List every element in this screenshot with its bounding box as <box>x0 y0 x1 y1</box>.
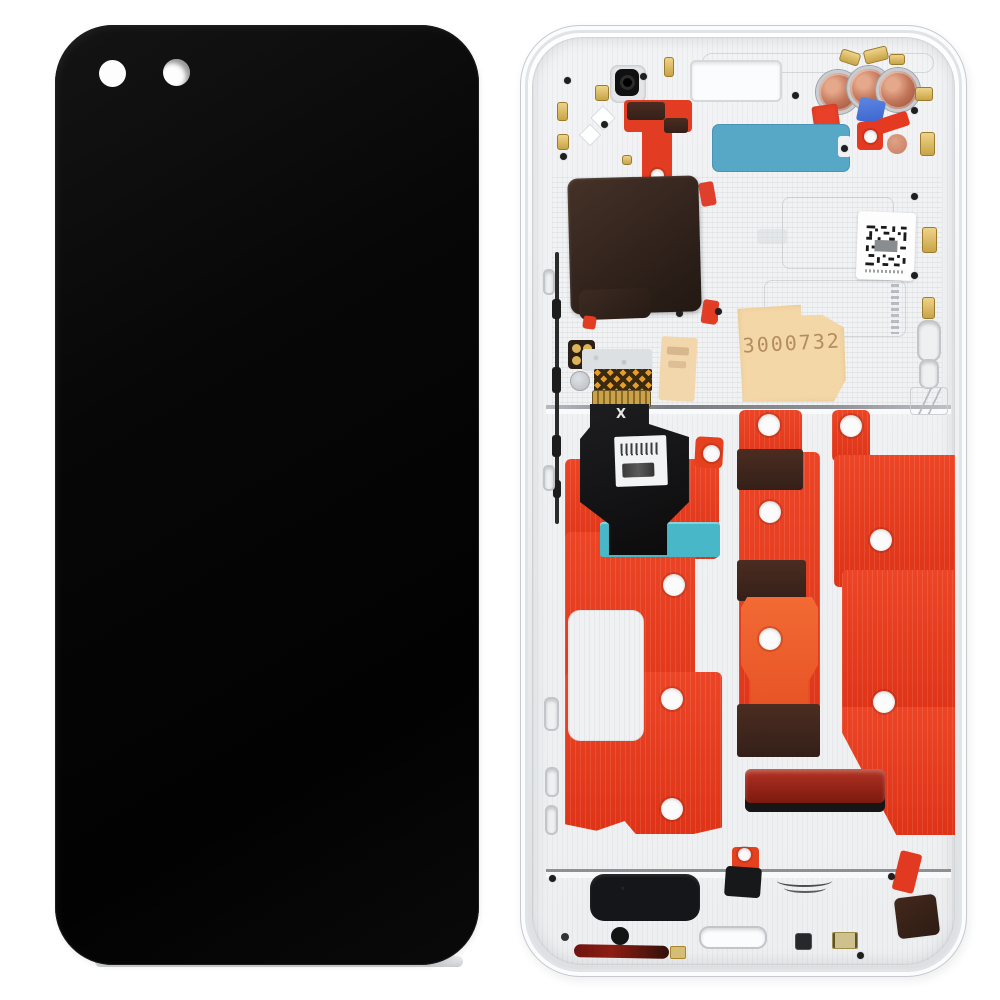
screw-dot <box>561 933 569 941</box>
antenna-blob <box>552 435 561 457</box>
screw-dot <box>560 153 567 160</box>
screw-dot <box>715 308 722 315</box>
flex-label-barcode <box>620 442 658 455</box>
qr-code-icon <box>864 225 907 266</box>
qr-caption-marks <box>865 269 905 273</box>
gold-contact <box>920 132 935 156</box>
salmon-aperture <box>887 134 907 154</box>
gold-chip <box>832 932 858 949</box>
gold-contact <box>595 85 609 101</box>
side-slot <box>544 697 559 731</box>
frame-inner-plate: 3000732 <box>532 37 955 965</box>
adhesive-hole <box>661 688 683 710</box>
adhesive-hole <box>840 415 862 437</box>
diamond-tile <box>579 124 602 147</box>
gold-trace <box>889 54 905 65</box>
antenna-blob <box>552 367 561 393</box>
speaker-pad-right <box>894 894 941 940</box>
adhesive-hole <box>873 691 895 713</box>
serial-text: 3000732 <box>742 328 841 357</box>
speaker-mesh-pad <box>590 874 700 921</box>
black-bracket <box>724 866 762 898</box>
silver-grommet <box>570 371 590 391</box>
red-mini-tab <box>582 315 597 330</box>
screw-dot <box>888 873 895 880</box>
side-slot <box>545 767 559 797</box>
gold-contact <box>557 134 569 150</box>
side-bracket <box>910 387 948 415</box>
flex-x-mark: X <box>616 407 626 422</box>
gold-contact <box>664 57 674 77</box>
adhesive-hole <box>759 628 781 650</box>
maroon-gloss-pad <box>745 769 885 812</box>
gold-contact <box>922 227 937 253</box>
flex-shield-band <box>582 349 652 371</box>
screw-dot <box>640 73 647 80</box>
screw-dot <box>911 272 918 279</box>
red-tab-hole <box>703 445 720 462</box>
gold-contact-dot <box>572 356 581 365</box>
teal-sticker <box>712 124 850 172</box>
antenna-blob <box>552 299 561 319</box>
adhesive-hole <box>663 574 685 596</box>
adhesive-strip-right-body <box>834 455 955 587</box>
gold-end-tab <box>670 946 686 959</box>
gold-contact <box>915 87 933 101</box>
volume-button-slot <box>919 359 939 389</box>
flex-label <box>614 435 668 487</box>
red-bottom-tab-right <box>891 850 922 894</box>
adhesive-brown-band <box>737 704 820 757</box>
adhesive-brown-band <box>737 449 803 490</box>
sticker-print-smudge <box>668 360 686 368</box>
sticker-print-smudge <box>667 346 689 355</box>
vertical-print-marks <box>891 284 899 334</box>
screw-dot <box>549 875 556 882</box>
screw-dot <box>841 145 848 152</box>
adhesive-strip-right-body2 <box>842 570 955 718</box>
red-bottom-tab-hole <box>738 848 751 861</box>
screw-dot <box>857 952 864 959</box>
earpiece-cutout <box>690 60 782 102</box>
side-slot <box>543 269 555 295</box>
maroon-thin-strip <box>574 944 669 959</box>
embossed-mark <box>757 229 787 244</box>
gold-contact <box>557 102 568 121</box>
brown-patch <box>664 118 688 133</box>
adhesive-hole <box>759 501 781 523</box>
gold-contact <box>622 155 632 165</box>
screw-dot <box>564 77 571 84</box>
screw-dot <box>911 107 918 114</box>
mic-port <box>611 927 629 945</box>
front-camera-lens <box>620 75 635 90</box>
side-slot <box>543 465 555 491</box>
adhesive-brown-band <box>737 560 806 601</box>
adhesive-hole <box>870 529 892 551</box>
qr-code-sticker <box>856 211 916 281</box>
charging-port-cutout <box>699 926 767 949</box>
punch-hole-camera-2 <box>163 59 190 86</box>
gold-contact <box>922 297 935 319</box>
product-photo: 3000732 <box>0 0 1000 1000</box>
screw-dot <box>792 92 799 99</box>
gold-zigzag-window <box>594 369 652 391</box>
brown-patch <box>627 102 665 120</box>
wire-squiggle <box>784 883 826 893</box>
flex-tab-hole <box>864 130 877 143</box>
screw-dot <box>676 310 683 317</box>
front-screen-assembly <box>55 25 479 965</box>
small-tan-sticker <box>658 336 697 402</box>
adhesive-window <box>568 610 644 741</box>
mid-frame-back: 3000732 <box>520 25 967 977</box>
screw-dot <box>911 193 918 200</box>
adhesive-hole <box>758 414 780 436</box>
adhesive-hole <box>661 798 683 820</box>
side-slot <box>545 805 558 835</box>
power-button-slot <box>917 320 941 362</box>
flex-label-print <box>622 463 654 478</box>
punch-hole-camera-1 <box>99 60 126 87</box>
gold-contact-dot <box>572 344 581 353</box>
screw-dot <box>601 121 608 128</box>
black-component <box>795 933 812 950</box>
adhesive-pull-tab <box>741 597 818 705</box>
